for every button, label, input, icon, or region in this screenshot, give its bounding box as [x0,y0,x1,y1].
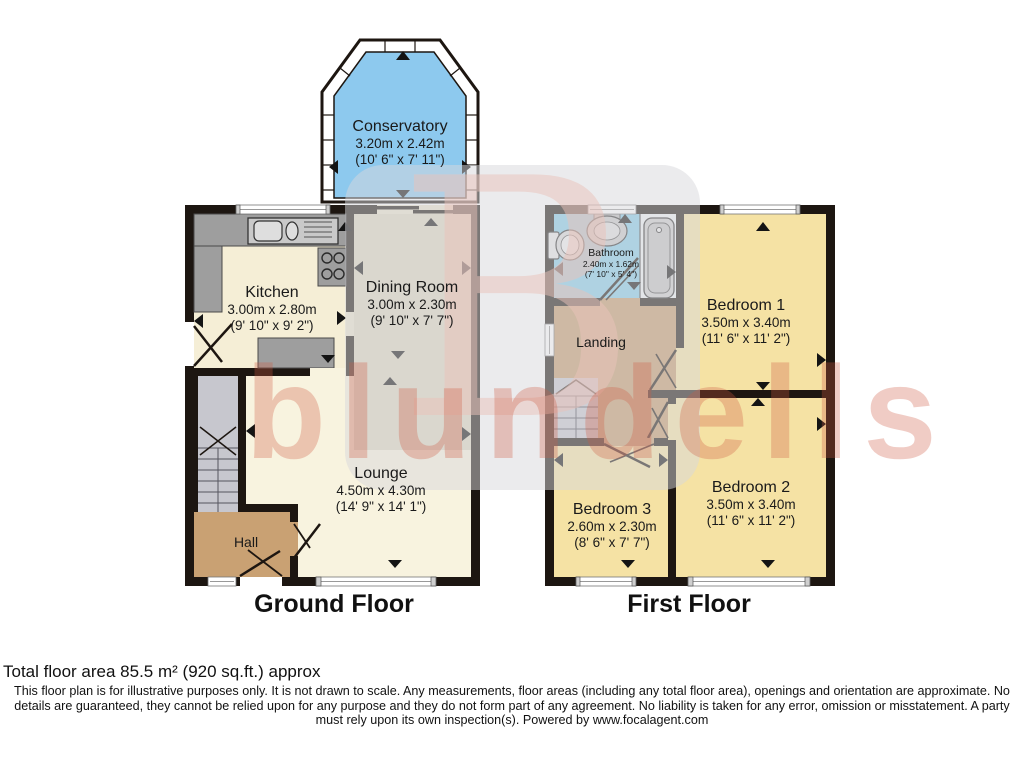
kitchen-sink [248,218,338,244]
floor-plan-graphic: B blundells [0,0,1024,768]
room-label-dining: Dining Room 3.00m x 2.30m (9' 10" x 7' 7… [366,278,458,329]
room-label-bedroom2: Bedroom 2 3.50m x 3.40m (11' 6" x 11' 2"… [706,478,795,529]
ground-floor-title: Ground Floor [254,590,414,619]
disclaimer-line-2: details are guaranteed, they cannot be r… [0,699,1024,714]
disclaimer: This floor plan is for illustrative purp… [0,684,1024,728]
floorplan-page: B blundells Conservatory 3.20m x 2.42m (… [0,0,1024,768]
disclaimer-line-1: This floor plan is for illustrative purp… [0,684,1024,699]
room-label-bedroom3: Bedroom 3 2.60m x 2.30m (8' 6" x 7' 7") [567,500,656,551]
room-label-bedroom1: Bedroom 1 3.50m x 3.40m (11' 6" x 11' 2"… [701,296,790,347]
room-label-kitchen: Kitchen 3.00m x 2.80m (9' 10" x 9' 2") [227,283,316,334]
disclaimer-line-3: must rely upon its own inspection(s). Po… [0,713,1024,728]
first-floor-title: First Floor [627,590,751,619]
room-label-bathroom: Bathroom 2.40m x 1.62m (7' 10" x 5' 4") [583,247,639,279]
total-floor-area: Total floor area 85.5 m² (920 sq.ft.) ap… [3,662,321,682]
room-label-landing: Landing [576,333,626,352]
room-label-hall: Hall [234,533,258,552]
room-label-conservatory: Conservatory 3.20m x 2.42m (10' 6" x 7' … [352,117,447,168]
room-label-lounge: Lounge 4.50m x 4.30m (14' 9" x 14' 1") [336,464,427,515]
